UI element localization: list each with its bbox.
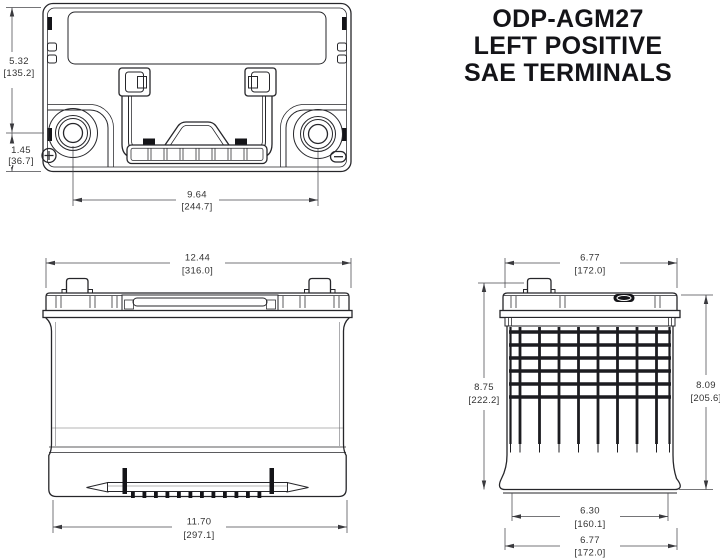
side-rib-grid <box>509 327 671 453</box>
dim-top-height-in: 5.32 <box>9 56 29 67</box>
dim-side-case-height-mm: [205.6] <box>690 393 720 404</box>
front-body <box>46 318 349 497</box>
side-vent-port <box>614 294 635 302</box>
front-left-post <box>67 279 89 294</box>
engineering-drawing: ODP-AGM27 LEFT POSITIVE SAE TERMINALS <box>0 0 720 558</box>
dim-terminal-offset-mm: [36.7] <box>8 156 34 167</box>
side-upper-band <box>505 318 675 327</box>
dim-terminal-offset-in: 1.45 <box>11 145 31 156</box>
dim-front-base-mm: [297.1] <box>183 530 214 541</box>
front-lip <box>43 311 352 318</box>
dim-depth-top: 6.77 [172.0] <box>505 253 677 289</box>
side-body <box>499 326 680 490</box>
dim-side-case-height-in: 8.09 <box>696 380 716 391</box>
dim-depth-bottom: 6.77 [172.0] <box>505 528 677 558</box>
dim-side-total-height-mm: [222.2] <box>468 395 499 406</box>
dim-side-depth-bottom-mm: [172.0] <box>574 548 605 558</box>
dim-terminal-spacing-mm: [244.7] <box>181 202 212 213</box>
front-view: 12.44 [316.0] 11.70 [297.1] <box>43 253 352 542</box>
dim-front-width-mm: [316.0] <box>182 266 213 277</box>
dim-front-base-in: 11.70 <box>187 517 212 528</box>
dim-overall-width: 12.44 [316.0] <box>46 253 351 289</box>
dim-front-width-in: 12.44 <box>185 253 210 264</box>
dim-side-depth-top-mm: [172.0] <box>574 266 605 277</box>
dim-side-depth-bottom-in: 6.77 <box>580 535 600 546</box>
dim-side-depth-top-in: 6.77 <box>580 253 600 264</box>
side-view: 6.77 [172.0] 8.75 [222.2] 8.09 [205.6] <box>468 253 720 558</box>
front-right-post <box>309 279 331 294</box>
dim-base-depth: 6.30 [160.1] <box>512 493 668 530</box>
top-view-label-area <box>68 12 326 64</box>
dim-side-total-height-in: 8.75 <box>474 382 494 393</box>
dim-terminal-offset: 1.45 [36.7] <box>8 133 34 172</box>
dim-top-height-mm: [135.2] <box>3 68 34 79</box>
dim-base-width: 11.70 [297.1] <box>53 500 347 541</box>
dim-side-base-mm: [160.1] <box>574 519 605 530</box>
drawing-svg: 5.32 [135.2] 1.45 [36.7] 9.64 [244.7] <box>0 0 720 558</box>
dim-side-base-in: 6.30 <box>580 506 600 517</box>
side-lip <box>500 311 680 318</box>
front-handle-recess <box>122 295 278 311</box>
dim-case-height: 8.09 [205.6] <box>679 295 720 490</box>
top-view: 5.32 [135.2] 1.45 [36.7] 9.64 [244.7] <box>3 4 351 213</box>
side-post <box>528 279 552 294</box>
front-folded-handle <box>87 468 309 498</box>
dim-terminal-spacing-in: 9.64 <box>187 190 207 201</box>
